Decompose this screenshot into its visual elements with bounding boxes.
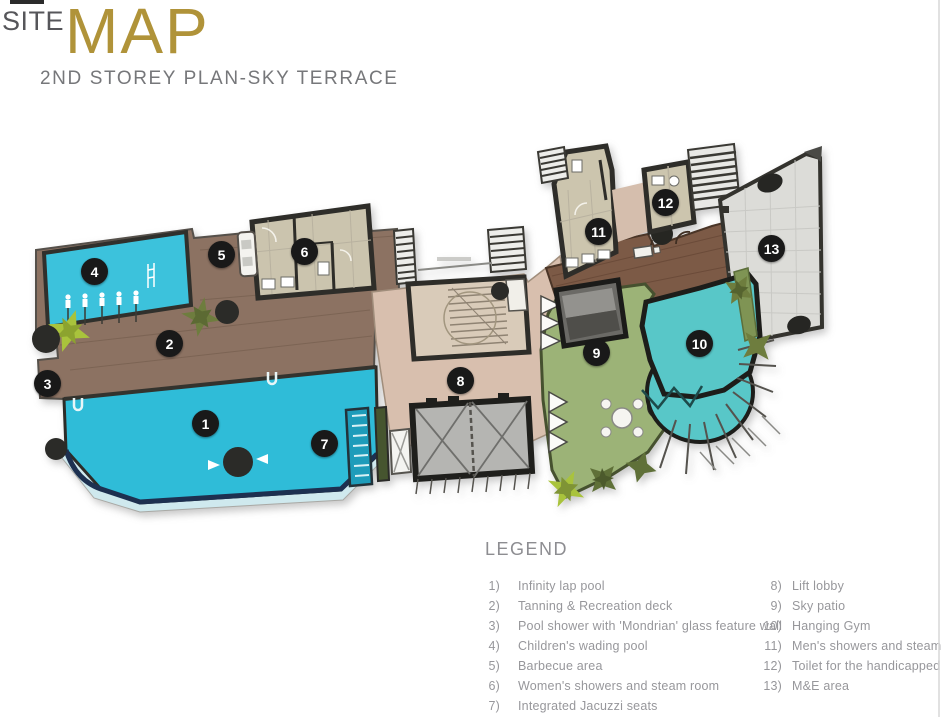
legend-item-number: 1) (470, 579, 518, 593)
deck-planter (45, 438, 67, 460)
legend-item: 3)Pool shower with 'Mondrian' glass feat… (470, 616, 750, 636)
map-marker-11: 11 (585, 218, 612, 245)
legend-item-number: 2) (470, 599, 518, 613)
louver-panel (538, 147, 568, 183)
legend-column-2: 8)Lift lobby9)Sky patio10)Hanging Gym11)… (750, 576, 940, 716)
legend-item: 12)Toilet for the handicapped (750, 656, 940, 676)
legend-column-1: 1)Infinity lap pool2)Tanning & Recreatio… (470, 576, 750, 716)
pool-planter (223, 447, 253, 477)
legend-item-label: Hanging Gym (792, 619, 871, 633)
legend-item-number: 11) (750, 639, 792, 653)
legend-item-label: Lift lobby (792, 579, 844, 593)
legend-item: 6)Women's showers and steam room (470, 676, 750, 696)
legend-item-label: M&E area (792, 679, 849, 693)
page-edge-line (938, 0, 940, 717)
stair-planter (491, 282, 509, 300)
jacuzzi-seats (346, 408, 372, 486)
legend-item-label: Women's showers and steam room (518, 679, 719, 693)
legend-item-label: Tanning & Recreation deck (518, 599, 672, 613)
legend-item: 2)Tanning & Recreation deck (470, 596, 750, 616)
map-marker-1: 1 (192, 410, 219, 437)
legend-item: 4)Children's wading pool (470, 636, 750, 656)
legend-item-number: 12) (750, 659, 792, 673)
legend-item-label: Men's showers and steam room (792, 639, 943, 653)
legend-item-label: Toilet for the handicapped (792, 659, 940, 673)
map-marker-8: 8 (447, 367, 474, 394)
legend-item-number: 3) (470, 619, 518, 633)
barbecue-counter (237, 231, 257, 276)
map-marker-2: 2 (156, 330, 183, 357)
legend-item-number: 5) (470, 659, 518, 673)
map-marker-5: 5 (208, 241, 235, 268)
map-marker-12: 12 (652, 189, 679, 216)
legend-item: 13)M&E area (750, 676, 940, 696)
legend-item: 10)Hanging Gym (750, 616, 940, 636)
legend-heading: LEGEND (470, 538, 940, 560)
map-marker-6: 6 (291, 238, 318, 265)
legend-item-label: Children's wading pool (518, 639, 648, 653)
legend: LEGEND 1)Infinity lap pool2)Tanning & Re… (470, 538, 940, 716)
legend-item-label: Integrated Jacuzzi seats (518, 699, 658, 713)
legend-item-number: 4) (470, 639, 518, 653)
legend-item-number: 7) (470, 699, 518, 713)
map-marker-9: 9 (583, 339, 610, 366)
legend-item: 8)Lift lobby (750, 576, 940, 596)
legend-item: 5)Barbecue area (470, 656, 750, 676)
deck-planter (215, 300, 239, 324)
map-marker-10: 10 (686, 330, 713, 357)
map-marker-13: 13 (758, 235, 785, 262)
legend-item: 9)Sky patio (750, 596, 940, 616)
legend-item: 7)Integrated Jacuzzi seats (470, 696, 750, 716)
louver-panel (488, 227, 526, 272)
legend-item: 1)Infinity lap pool (470, 576, 750, 596)
deck-planter (32, 325, 60, 353)
map-marker-3: 3 (34, 370, 61, 397)
legend-item-number: 10) (750, 619, 792, 633)
legend-item-number: 9) (750, 599, 792, 613)
legend-item: 11)Men's showers and steam room (750, 636, 940, 656)
legend-columns: 1)Infinity lap pool2)Tanning & Recreatio… (470, 576, 940, 716)
legend-item-number: 8) (750, 579, 792, 593)
legend-item-label: Infinity lap pool (518, 579, 605, 593)
legend-item-number: 13) (750, 679, 792, 693)
legend-item-label: Pool shower with 'Mondrian' glass featur… (518, 619, 782, 633)
map-marker-7: 7 (311, 430, 338, 457)
skylight-box (556, 280, 626, 346)
louver-panel (394, 229, 416, 284)
legend-item-label: Sky patio (792, 599, 845, 613)
legend-item-number: 6) (470, 679, 518, 693)
stairwell (408, 277, 529, 359)
legend-item-label: Barbecue area (518, 659, 603, 673)
map-marker-4: 4 (81, 258, 108, 285)
hanging-gym (642, 274, 780, 474)
